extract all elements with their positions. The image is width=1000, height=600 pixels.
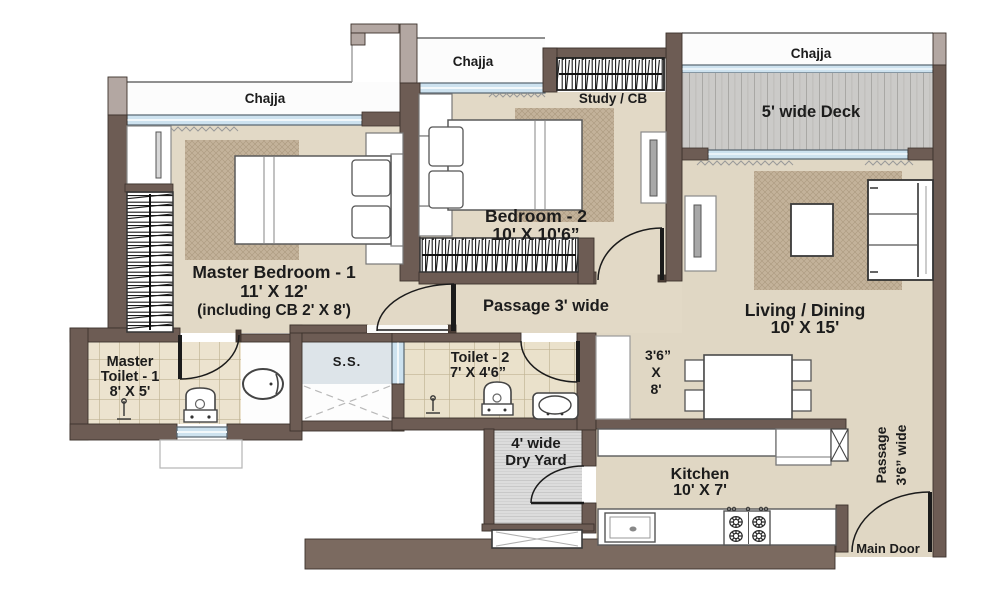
- svg-text:Toilet - 2: Toilet - 2: [451, 350, 510, 366]
- svg-text:10' X 7': 10' X 7': [673, 482, 727, 499]
- svg-text:X: X: [651, 364, 661, 380]
- svg-text:10' X 10'6”: 10' X 10'6”: [492, 224, 579, 244]
- svg-text:Chajja: Chajja: [245, 91, 286, 106]
- svg-text:Bedroom - 2: Bedroom - 2: [485, 206, 587, 226]
- svg-text:10' X 15': 10' X 15': [771, 317, 840, 337]
- svg-text:Study / CB: Study / CB: [579, 91, 648, 106]
- svg-text:4' wide: 4' wide: [511, 435, 560, 452]
- svg-text:(including CB 2' X 8'): (including CB 2' X 8'): [197, 302, 351, 319]
- svg-text:Toilet - 1: Toilet - 1: [101, 369, 160, 385]
- svg-text:Passage: Passage: [873, 426, 889, 483]
- svg-text:7' X 4'6”: 7' X 4'6”: [450, 365, 506, 381]
- svg-text:Master Bedroom - 1: Master Bedroom - 1: [192, 262, 356, 282]
- svg-text:3'6”: 3'6”: [645, 347, 671, 363]
- svg-text:3'6” wide: 3'6” wide: [893, 424, 909, 485]
- svg-text:8': 8': [650, 381, 661, 397]
- svg-text:Dry Yard: Dry Yard: [505, 452, 566, 469]
- svg-text:11' X 12': 11' X 12': [240, 281, 308, 301]
- svg-text:Chajja: Chajja: [453, 54, 494, 69]
- svg-text:Master: Master: [107, 354, 154, 370]
- svg-text:5' wide Deck: 5' wide Deck: [762, 103, 861, 121]
- svg-text:S.S.: S.S.: [333, 354, 362, 369]
- svg-text:Chajja: Chajja: [791, 46, 832, 61]
- svg-text:Passage 3' wide: Passage 3' wide: [483, 297, 609, 315]
- svg-text:Kitchen: Kitchen: [671, 466, 730, 483]
- svg-text:8' X 5': 8' X 5': [110, 384, 151, 400]
- svg-text:Main Door: Main Door: [856, 541, 920, 556]
